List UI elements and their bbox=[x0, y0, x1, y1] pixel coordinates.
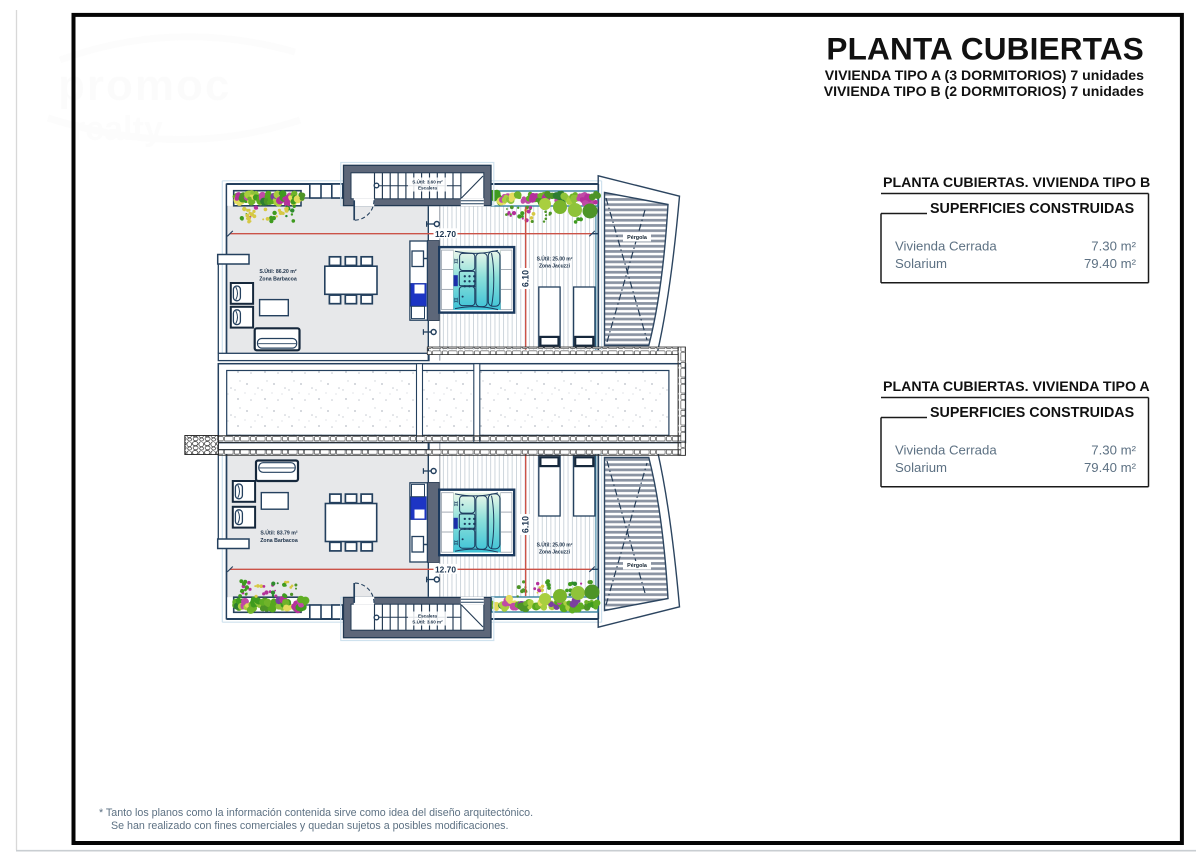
svg-text:realty: realty bbox=[72, 110, 163, 148]
svg-text:Vivienda Cerrada: Vivienda Cerrada bbox=[895, 239, 997, 254]
svg-text:Zona Barbacoa: Zona Barbacoa bbox=[260, 538, 298, 544]
svg-text:S.Útil: 25.00 m²: S.Útil: 25.00 m² bbox=[537, 256, 573, 263]
svg-text:Zona Barbacoa: Zona Barbacoa bbox=[259, 276, 297, 282]
svg-text:6.10: 6.10 bbox=[521, 270, 531, 287]
svg-text:12.70: 12.70 bbox=[435, 229, 456, 239]
svg-text:79.40 m²: 79.40 m² bbox=[1084, 460, 1137, 475]
svg-text:VIVIENDA TIPO B (2 DORMITORIOS: VIVIENDA TIPO B (2 DORMITORIOS) 7 unidad… bbox=[824, 83, 1144, 99]
svg-text:Vivienda Cerrada: Vivienda Cerrada bbox=[895, 443, 997, 458]
svg-text:S.Útil: 83.79 m²: S.Útil: 83.79 m² bbox=[260, 530, 297, 537]
svg-text:SUPERFICIES CONSTRUIDAS: SUPERFICIES CONSTRUIDAS bbox=[930, 201, 1134, 217]
svg-text:S.Útil: 3.60 m²: S.Útil: 3.60 m² bbox=[412, 619, 443, 625]
svg-text:Se han realizado con fines com: Se han realizado con fines comerciales y… bbox=[111, 820, 508, 832]
svg-text:12.70: 12.70 bbox=[435, 565, 456, 575]
svg-text:7.30 m²: 7.30 m² bbox=[1091, 239, 1136, 254]
svg-text:PLANTA CUBIERTAS. VIVIENDA TIP: PLANTA CUBIERTAS. VIVIENDA TIPO A bbox=[883, 379, 1150, 395]
svg-text:VIVIENDA TIPO A (3 DORMITORIOS: VIVIENDA TIPO A (3 DORMITORIOS) 7 unidad… bbox=[825, 67, 1144, 83]
svg-text:79.40 m²: 79.40 m² bbox=[1084, 256, 1137, 271]
svg-text:PLANTA CUBIERTAS: PLANTA CUBIERTAS bbox=[826, 31, 1144, 67]
svg-text:* Tanto los planos como la inf: * Tanto los planos como la información c… bbox=[99, 807, 533, 819]
svg-text:Zona Jacuzzi: Zona Jacuzzi bbox=[539, 264, 571, 270]
svg-text:S.Útil: 25.00 m²: S.Útil: 25.00 m² bbox=[537, 542, 573, 549]
svg-text:S.Útil: 86.20 m²: S.Útil: 86.20 m² bbox=[259, 268, 296, 275]
svg-text:Solarium: Solarium bbox=[895, 460, 947, 475]
svg-text:Zona Jacuzzi: Zona Jacuzzi bbox=[539, 550, 571, 556]
svg-text:Escalera: Escalera bbox=[418, 186, 437, 191]
svg-text:PLANTA CUBIERTAS. VIVIENDA TIP: PLANTA CUBIERTAS. VIVIENDA TIPO B bbox=[883, 175, 1150, 191]
svg-text:Solarium: Solarium bbox=[895, 256, 947, 271]
svg-text:S.Útil: 3.60 m²: S.Útil: 3.60 m² bbox=[412, 178, 443, 184]
svg-text:6.10: 6.10 bbox=[521, 516, 531, 533]
svg-text:promoc: promoc bbox=[58, 61, 231, 110]
svg-text:Pérgola: Pérgola bbox=[627, 563, 648, 569]
svg-text:Escalera: Escalera bbox=[418, 613, 437, 618]
svg-text:SUPERFICIES CONSTRUIDAS: SUPERFICIES CONSTRUIDAS bbox=[930, 405, 1134, 421]
svg-text:7.30 m²: 7.30 m² bbox=[1091, 443, 1136, 458]
svg-text:Pérgola: Pérgola bbox=[627, 235, 648, 241]
